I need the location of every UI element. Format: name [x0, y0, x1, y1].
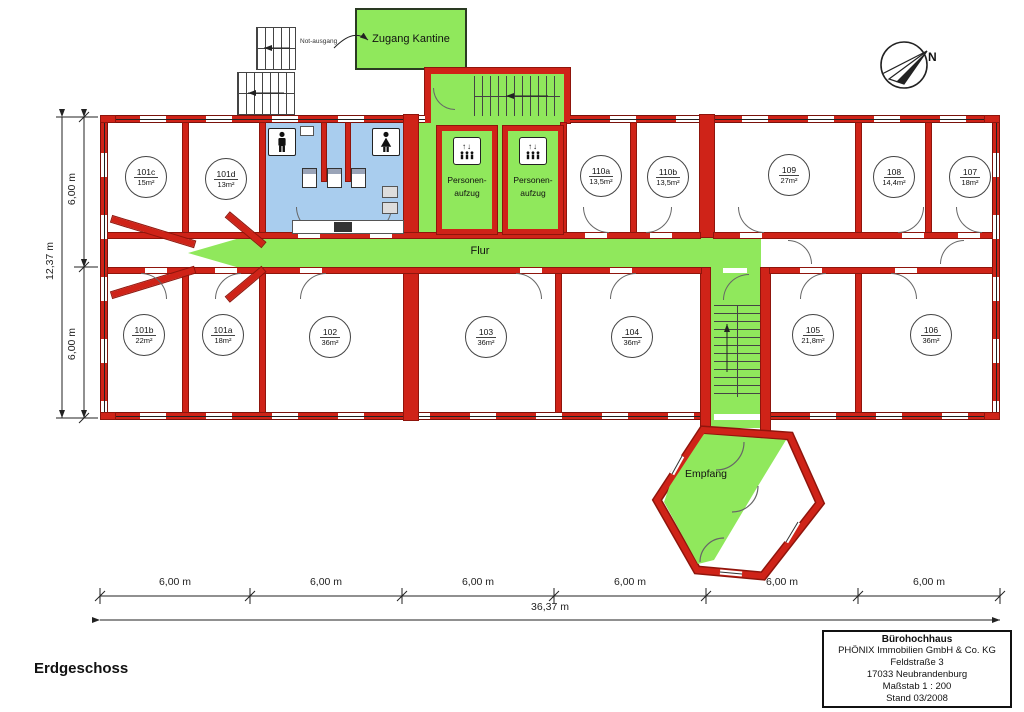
title-block-street: Feldstraße 3	[824, 658, 1010, 668]
dim-label-total: 36,37 m	[480, 601, 620, 613]
title-block-stand: Stand 03/2008	[824, 694, 1010, 704]
dim-label: 6,00 m	[66, 309, 78, 379]
title-block-company: PHÖNIX Immobilien GmbH & Co. KG	[824, 646, 1010, 656]
dim-label-total: 12,37 m	[44, 226, 56, 296]
title-block-city: 17033 Neubrandenburg	[824, 670, 1010, 680]
floor-plan-canvas: Not-ausgang Zugang Kantine	[0, 0, 1024, 712]
dim-label: 6,00 m	[100, 576, 250, 588]
dim-label: 6,00 m	[402, 576, 554, 588]
floor-title: Erdgeschoss	[34, 660, 128, 677]
dim-label: 6,00 m	[250, 576, 402, 588]
title-block-building: Bürohochhaus	[824, 634, 1010, 645]
title-block-scale: Maßstab 1 : 200	[824, 682, 1010, 692]
dim-label: 6,00 m	[554, 576, 706, 588]
title-block: Bürohochhaus PHÖNIX Immobilien GmbH & Co…	[822, 630, 1012, 708]
dim-label: 6,00 m	[706, 576, 858, 588]
dim-label: 6,00 m	[858, 576, 1000, 588]
dim-label: 6,00 m	[66, 154, 78, 224]
